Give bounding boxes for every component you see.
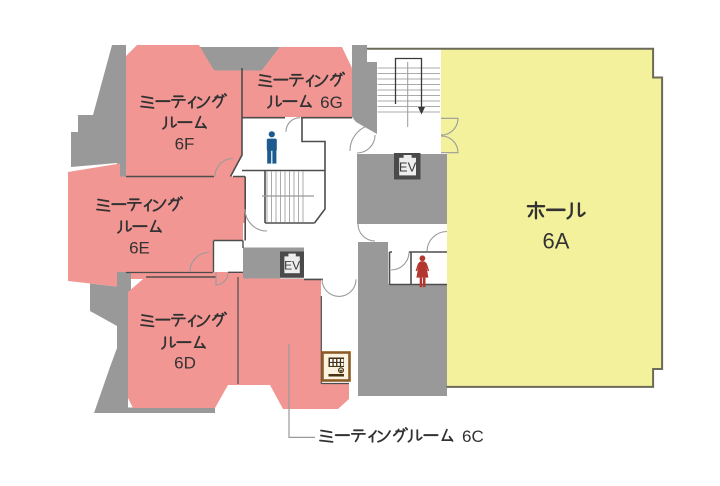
svg-text:6E: 6E	[129, 239, 150, 258]
svg-text:6G: 6G	[320, 93, 343, 112]
svg-text:6D: 6D	[174, 354, 196, 373]
svg-text:6A: 6A	[543, 229, 570, 254]
svg-text:6C: 6C	[462, 427, 484, 446]
svg-text:EV: EV	[399, 160, 417, 175]
svg-text:6F: 6F	[175, 135, 195, 154]
svg-text:EV: EV	[284, 258, 300, 272]
